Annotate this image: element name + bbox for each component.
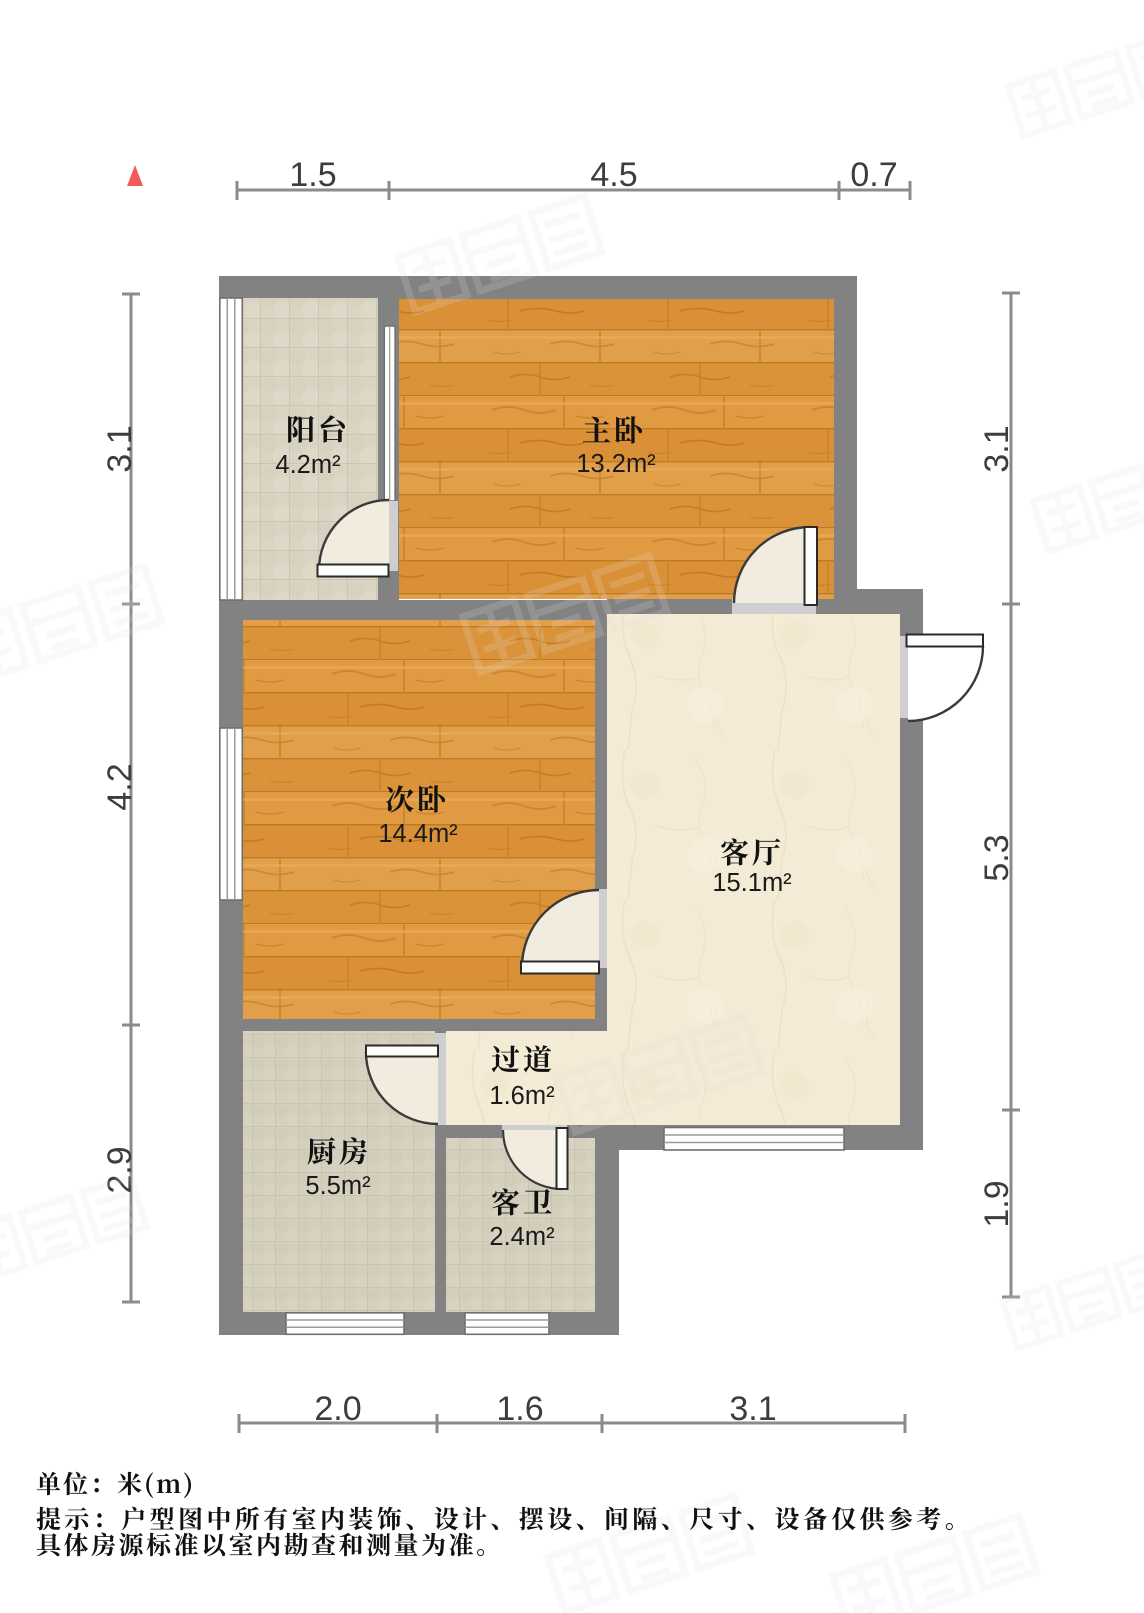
svg-text:2.0: 2.0 [314, 1390, 361, 1428]
svg-text:2.4m²: 2.4m² [489, 1223, 554, 1251]
svg-text:4.2: 4.2 [101, 763, 139, 810]
svg-text:15.1m²: 15.1m² [712, 869, 791, 897]
svg-text:14.4m²: 14.4m² [378, 820, 457, 848]
svg-text:4.5: 4.5 [590, 156, 637, 194]
svg-text:3.1: 3.1 [101, 425, 139, 472]
svg-text:4.2m²: 4.2m² [275, 451, 340, 479]
svg-text:1.9: 1.9 [978, 1180, 1016, 1227]
svg-text:5.3: 5.3 [978, 834, 1016, 881]
svg-text:0.7: 0.7 [850, 156, 897, 194]
svg-text:3.1: 3.1 [978, 425, 1016, 472]
svg-text:1.6m²: 1.6m² [489, 1082, 554, 1110]
svg-text:1.6: 1.6 [496, 1390, 543, 1428]
svg-text:5.5m²: 5.5m² [305, 1172, 370, 1200]
svg-text:1.5: 1.5 [289, 156, 336, 194]
svg-text:3.1: 3.1 [729, 1390, 776, 1428]
svg-text:13.2m²: 13.2m² [576, 450, 655, 478]
